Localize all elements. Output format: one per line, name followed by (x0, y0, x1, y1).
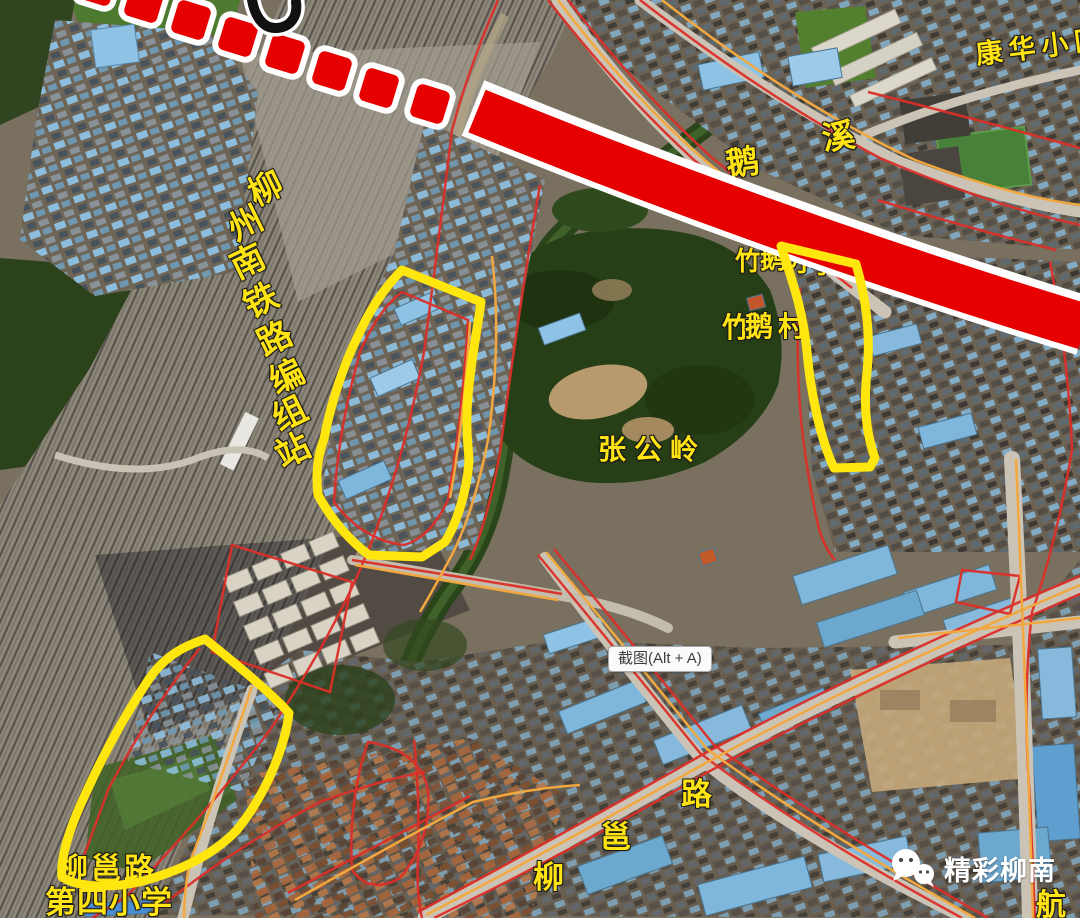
watermark-text: 精彩柳南 (944, 849, 1056, 888)
map-viewer: 柳 州 南 铁 路 编 组 站 鹅 溪 康华小区 竹 鹅 小 学 竹 鹅 村 张… (0, 0, 1080, 918)
wechat-icon (888, 848, 938, 888)
annotations (0, 0, 1080, 918)
screenshot-tooltip-label: 截图(Alt + A) (618, 650, 702, 667)
highlight-region-southwest (62, 639, 289, 886)
wechat-watermark: 精彩柳南 (888, 848, 1056, 888)
screenshot-tooltip-button[interactable]: 截图(Alt + A) (608, 646, 712, 672)
metro-line-solid (473, 108, 1080, 327)
highlight-region-east (781, 246, 875, 468)
highlight-region-north (317, 270, 481, 557)
station-symbol (251, 0, 296, 28)
